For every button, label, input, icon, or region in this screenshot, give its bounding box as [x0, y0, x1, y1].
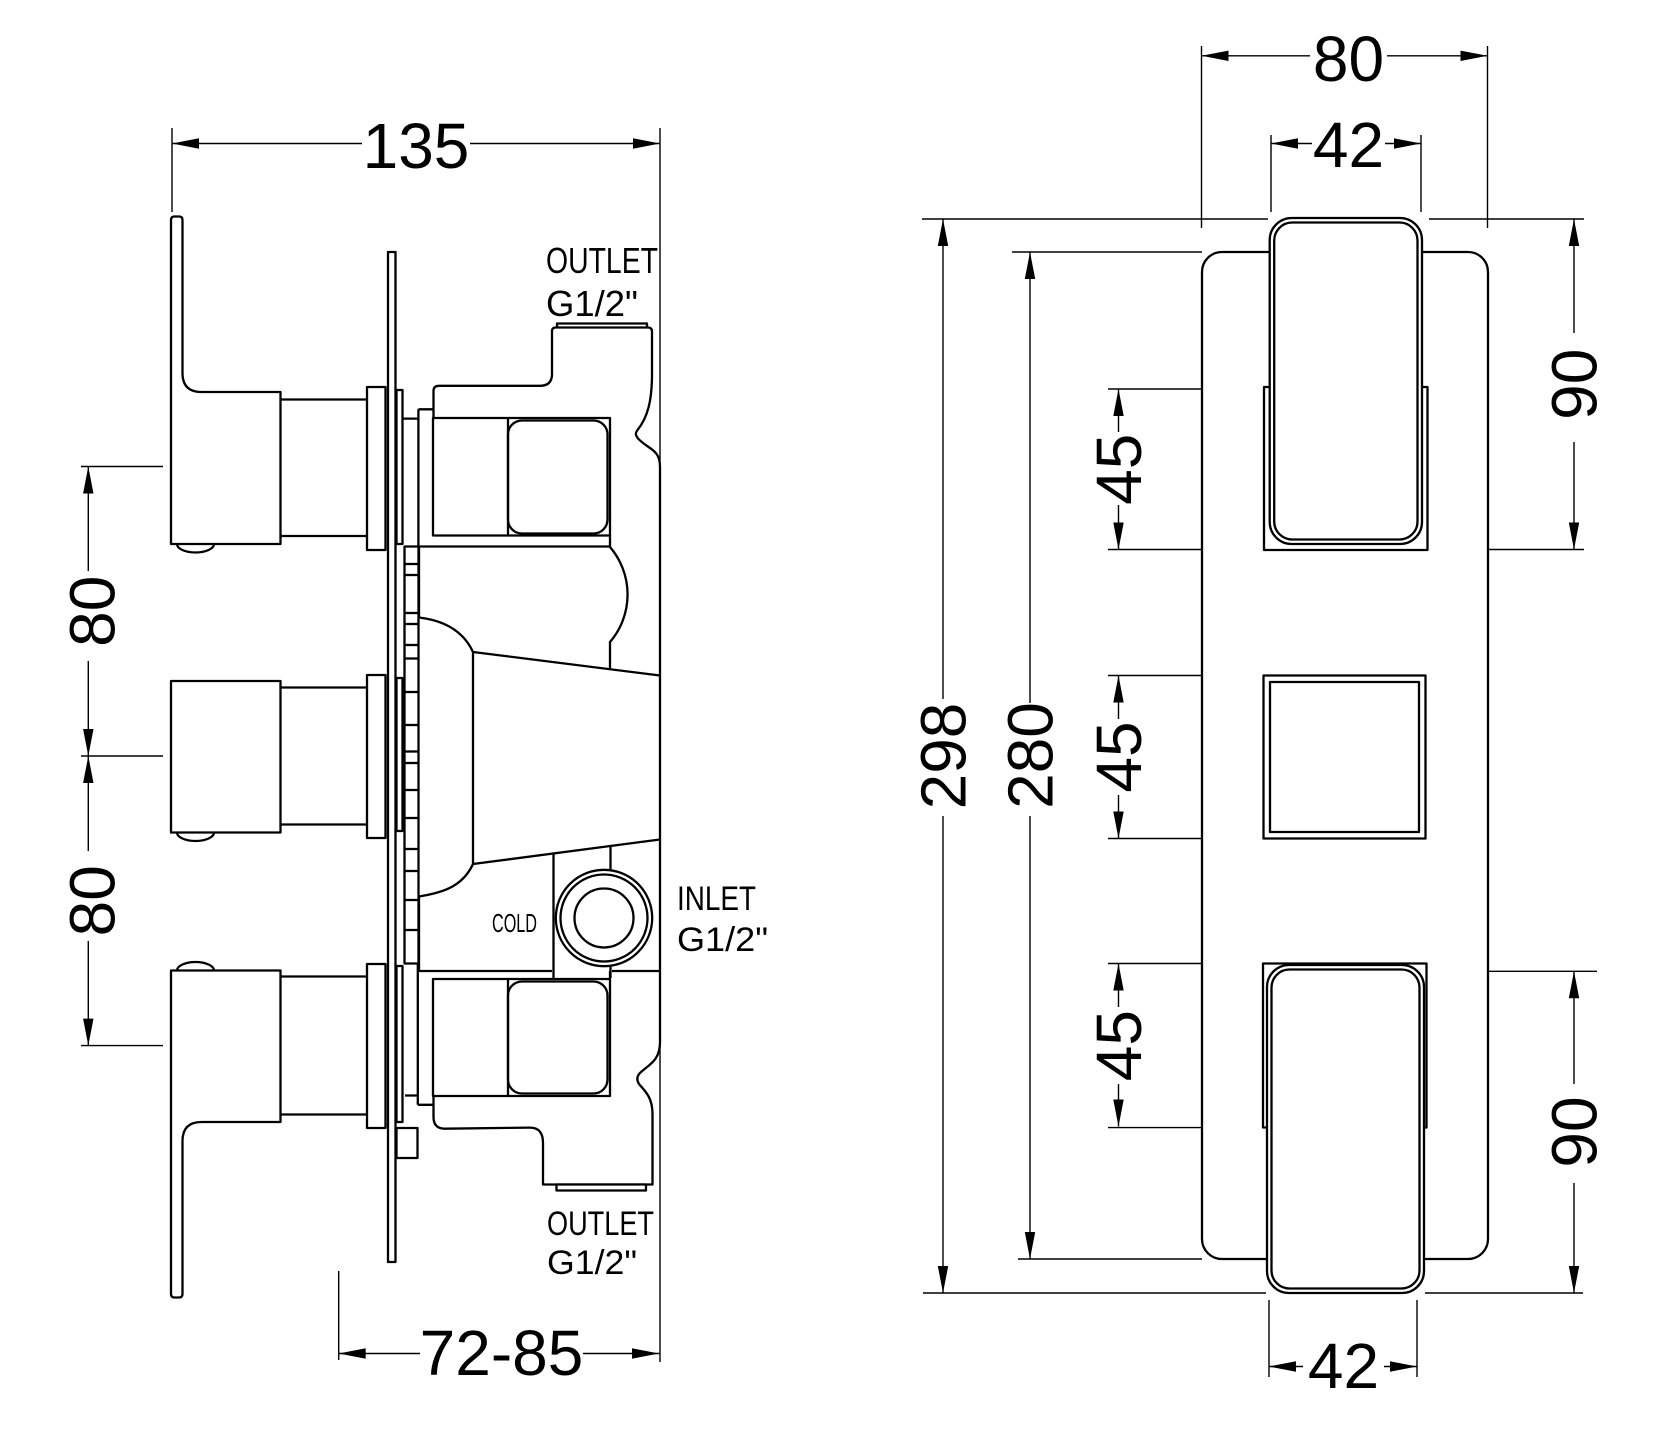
svg-text:80: 80: [1313, 23, 1384, 95]
svg-text:90: 90: [1539, 349, 1611, 420]
svg-text:80: 80: [57, 865, 129, 936]
svg-text:72-85: 72-85: [420, 1317, 584, 1389]
svg-text:45: 45: [1083, 721, 1155, 792]
svg-text:INLET: INLET: [677, 880, 756, 918]
svg-text:80: 80: [57, 576, 129, 647]
svg-text:OUTLET: OUTLET: [546, 240, 658, 281]
svg-text:90: 90: [1539, 1096, 1611, 1167]
svg-text:298: 298: [908, 703, 980, 810]
svg-text:G1/2": G1/2": [547, 1244, 637, 1282]
svg-text:135: 135: [363, 110, 470, 182]
svg-text:G1/2": G1/2": [546, 283, 638, 324]
svg-text:OUTLET: OUTLET: [547, 1205, 654, 1243]
svg-text:42: 42: [1313, 109, 1384, 181]
svg-text:G1/2": G1/2": [677, 921, 768, 959]
svg-text:45: 45: [1083, 434, 1155, 505]
svg-text:280: 280: [995, 702, 1067, 809]
svg-text:42: 42: [1308, 1330, 1379, 1402]
svg-text:COLD: COLD: [492, 908, 537, 938]
svg-text:45: 45: [1083, 1010, 1155, 1081]
